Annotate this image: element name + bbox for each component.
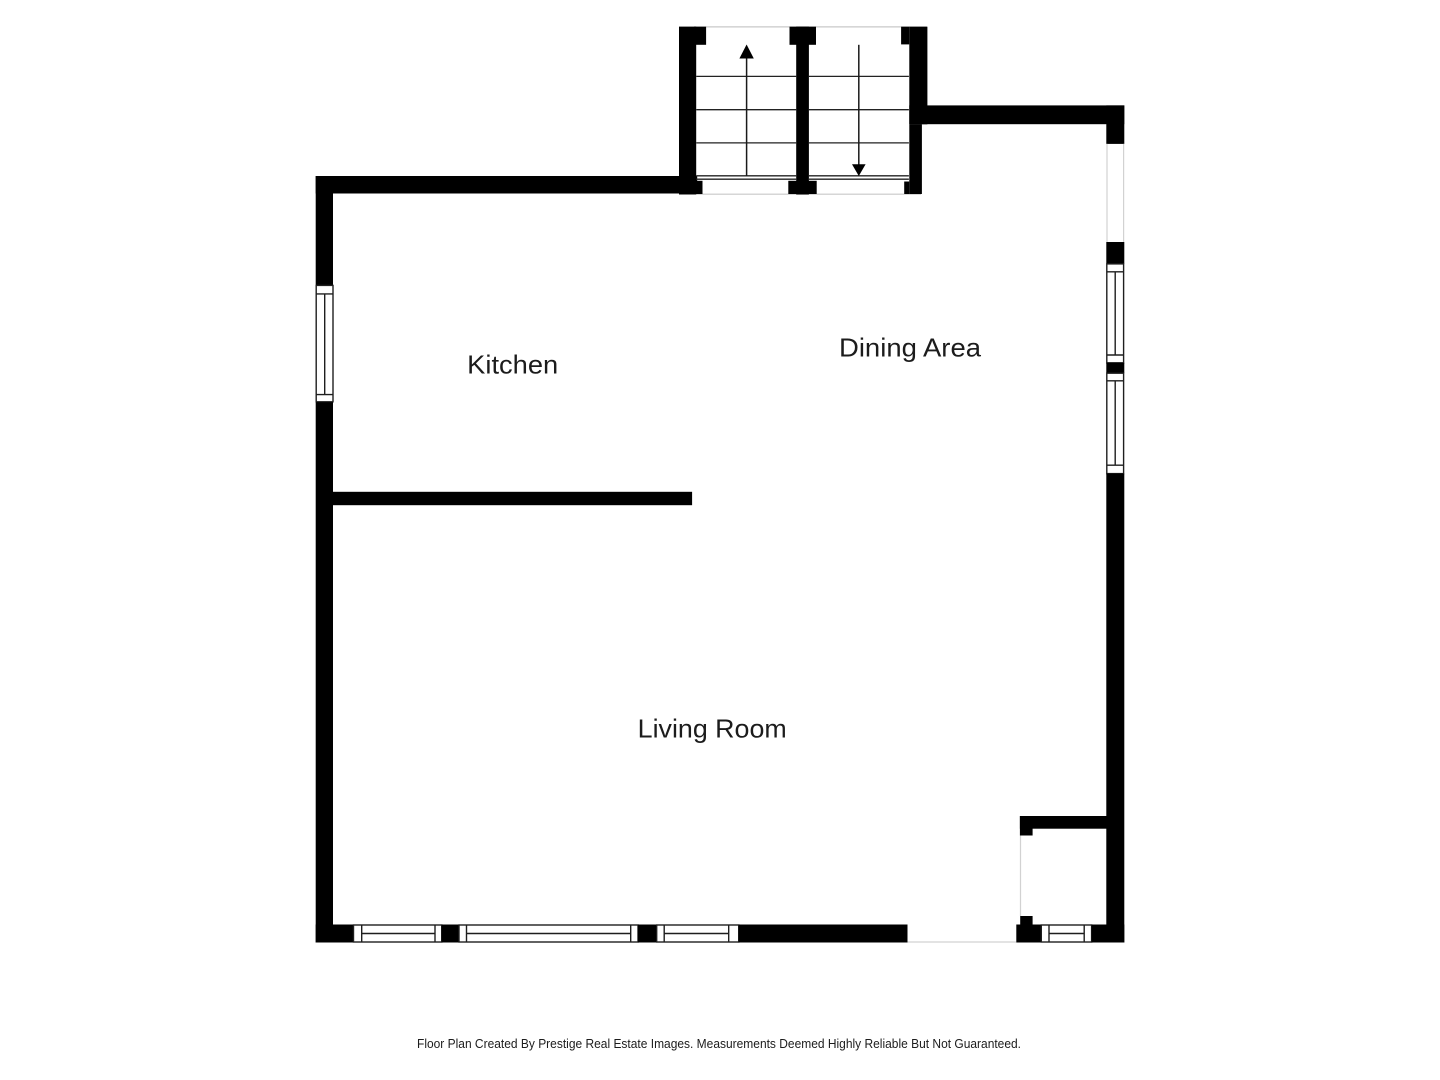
- svg-text:Living Room: Living Room: [638, 714, 787, 744]
- svg-text:Kitchen: Kitchen: [467, 349, 558, 379]
- svg-text:Dining Area: Dining Area: [839, 332, 982, 362]
- svg-text:Floor Plan Created By Prestige: Floor Plan Created By Prestige Real Esta…: [417, 1036, 1021, 1051]
